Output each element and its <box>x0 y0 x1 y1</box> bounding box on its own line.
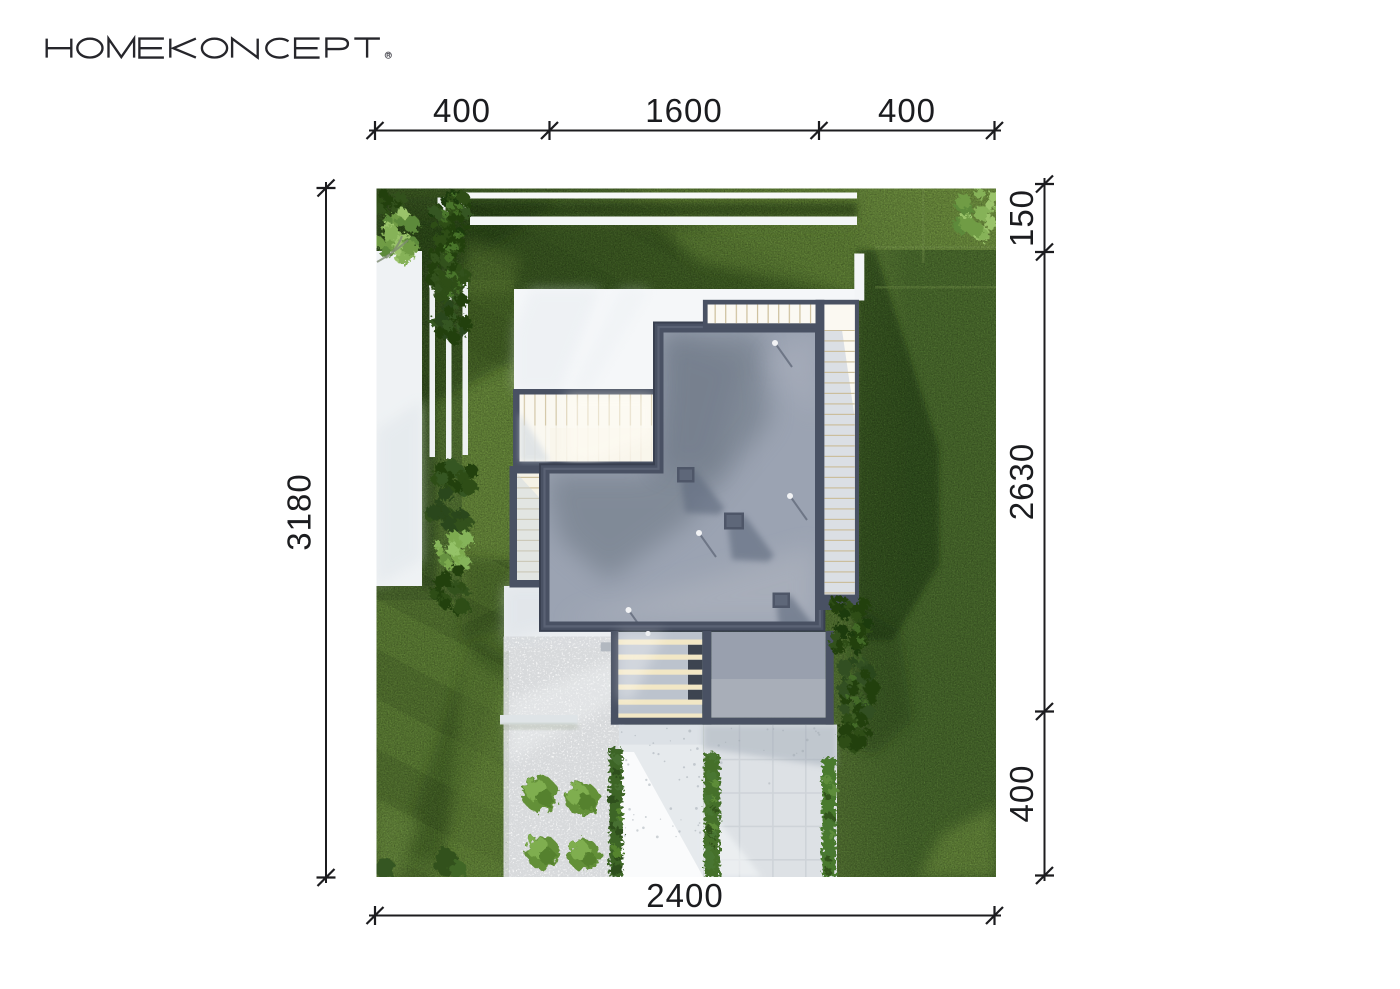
svg-text:400: 400 <box>433 92 491 129</box>
svg-text:150: 150 <box>1003 189 1040 247</box>
svg-text:2630: 2630 <box>1003 443 1040 520</box>
svg-text:2400: 2400 <box>646 877 723 914</box>
svg-text:3180: 3180 <box>281 473 318 550</box>
svg-text:400: 400 <box>878 92 936 129</box>
svg-text:1600: 1600 <box>645 92 722 129</box>
svg-text:400: 400 <box>1003 764 1040 822</box>
